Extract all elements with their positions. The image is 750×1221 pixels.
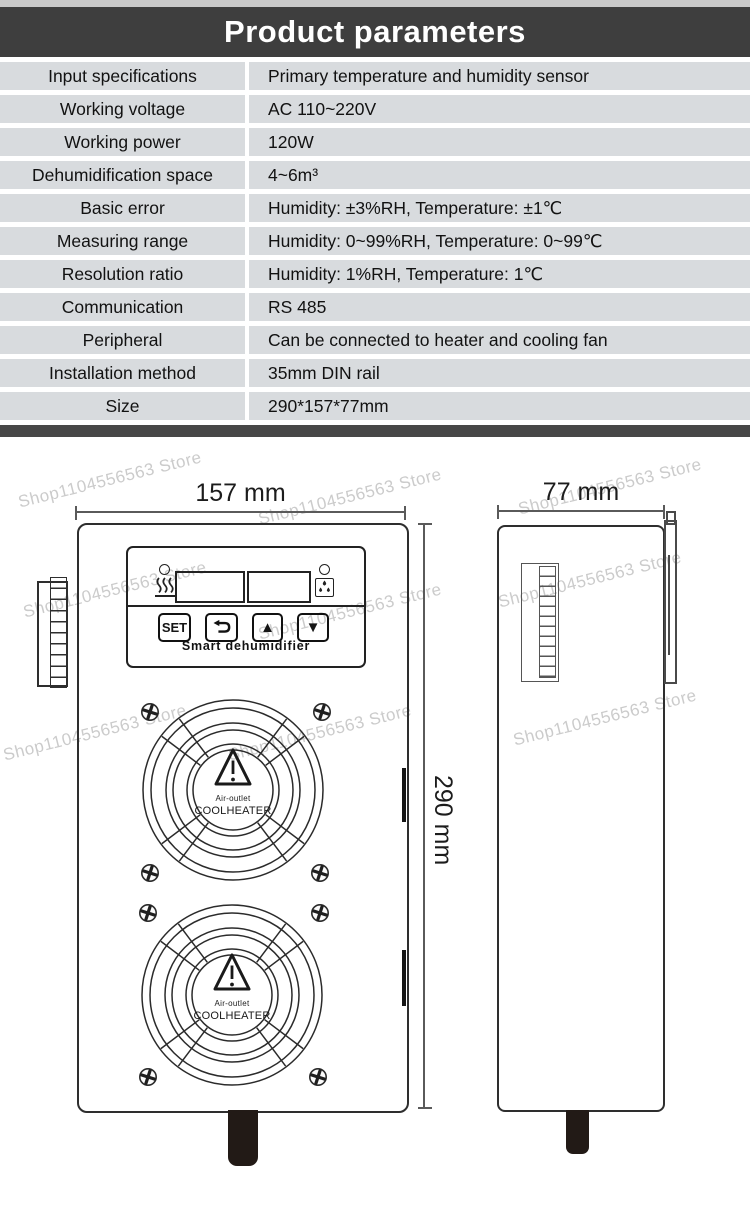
table-row: Resolution ratioHumidity: 1%RH, Temperat…	[0, 260, 750, 288]
table-row: Basic errorHumidity: ±3%RH, Temperature:…	[0, 194, 750, 222]
air-outlet-label: Air-outlet	[214, 999, 249, 1008]
coolheater-label: COOLHEATER	[194, 1010, 271, 1022]
screw-icon	[308, 1067, 328, 1087]
table-row: PeripheralCan be connected to heater and…	[0, 326, 750, 354]
row-value: Primary temperature and humidity sensor	[249, 62, 750, 90]
table-row: CommunicationRS 485	[0, 293, 750, 321]
page-title: Product parameters	[0, 7, 750, 57]
screw-icon	[310, 863, 330, 883]
row-value: 4~6m³	[249, 161, 750, 189]
din-clip-edge-mark	[402, 768, 406, 822]
row-value: Can be connected to heater and cooling f…	[249, 326, 750, 354]
return-arrow-icon	[211, 619, 233, 636]
terminal-block-front	[37, 577, 78, 689]
page: Product parameters Input specificationsP…	[0, 0, 750, 1221]
display-left	[175, 571, 245, 603]
screw-icon	[312, 702, 332, 722]
top-strip	[0, 0, 750, 7]
front-width-dimension-line	[75, 511, 406, 513]
din-rail-clip-slot	[668, 555, 670, 655]
row-label: Working power	[0, 128, 245, 156]
coolheater-label: COOLHEATER	[195, 805, 272, 817]
front-width-dimension-label: 157 mm	[75, 479, 406, 508]
row-value: RS 485	[249, 293, 750, 321]
terminal-block-side	[521, 563, 559, 682]
row-value: Humidity: 0~99%RH, Temperature: 0~99℃	[249, 227, 750, 255]
row-value: Humidity: ±3%RH, Temperature: ±1℃	[249, 194, 750, 222]
air-outlet-label: Air-outlet	[215, 794, 250, 803]
terminal-pins	[539, 566, 556, 678]
heater-icon	[153, 576, 177, 598]
row-label: Input specifications	[0, 62, 245, 90]
row-label: Dehumidification space	[0, 161, 245, 189]
row-label: Measuring range	[0, 227, 245, 255]
row-value: AC 110~220V	[249, 95, 750, 123]
technical-drawing-section: Shop1104556563 Store Shop1104556563 Stor…	[0, 437, 750, 1221]
panel-button-area: SET ▲ ▼ Smart dehumidifier	[128, 607, 364, 662]
humidity-icon	[315, 578, 334, 597]
control-panel: SET ▲ ▼ Smart dehumidifier	[126, 546, 366, 668]
front-height-dimension-label: 290 mm	[428, 775, 457, 865]
table-row: Measuring rangeHumidity: 0~99%RH, Temper…	[0, 227, 750, 255]
screw-icon	[138, 1067, 158, 1087]
device-model-label: Smart dehumidifier	[128, 639, 364, 653]
screw-icon	[138, 903, 158, 923]
table-row: Size290*157*77mm	[0, 392, 750, 420]
table-row: Input specificationsPrimary temperature …	[0, 62, 750, 90]
side-width-dimension-label: 77 mm	[497, 478, 665, 507]
din-rail-clip	[664, 520, 677, 684]
row-value: 35mm DIN rail	[249, 359, 750, 387]
screw-icon	[140, 863, 160, 883]
row-value: Humidity: 1%RH, Temperature: 1℃	[249, 260, 750, 288]
set-button: SET	[158, 613, 191, 642]
front-height-dimension-line	[423, 523, 425, 1109]
warning-triangle-icon	[216, 750, 250, 784]
table-row: Working power120W	[0, 128, 750, 156]
row-value: 290*157*77mm	[249, 392, 750, 420]
screw-icon	[140, 702, 160, 722]
return-button	[205, 613, 238, 642]
display-right	[247, 571, 311, 603]
screw-icon	[310, 903, 330, 923]
heater-led-icon	[159, 564, 170, 575]
din-clip-edge-mark	[402, 950, 406, 1006]
spec-table: Input specificationsPrimary temperature …	[0, 62, 750, 420]
table-row: Installation method35mm DIN rail	[0, 359, 750, 387]
row-label: Peripheral	[0, 326, 245, 354]
up-button: ▲	[252, 613, 283, 642]
mounting-tab-side	[566, 1110, 589, 1154]
panel-display-area	[128, 548, 364, 607]
table-row: Working voltageAC 110~220V	[0, 95, 750, 123]
row-label: Communication	[0, 293, 245, 321]
side-width-dimension-line	[497, 510, 665, 512]
row-label: Resolution ratio	[0, 260, 245, 288]
fan-grill-top: Air-outlet COOLHEATER	[140, 697, 326, 883]
terminal-pins	[50, 577, 67, 688]
table-row: Dehumidification space4~6m³	[0, 161, 750, 189]
warning-triangle-icon	[215, 955, 249, 989]
down-button: ▼	[297, 613, 329, 642]
row-label: Installation method	[0, 359, 245, 387]
fan-grill-bottom: Air-outlet COOLHEATER	[139, 902, 325, 1088]
humidity-led-icon	[319, 564, 330, 575]
row-value: 120W	[249, 128, 750, 156]
mounting-tab-front	[228, 1110, 258, 1166]
section-divider-bar	[0, 425, 750, 437]
row-label: Working voltage	[0, 95, 245, 123]
row-label: Size	[0, 392, 245, 420]
row-label: Basic error	[0, 194, 245, 222]
